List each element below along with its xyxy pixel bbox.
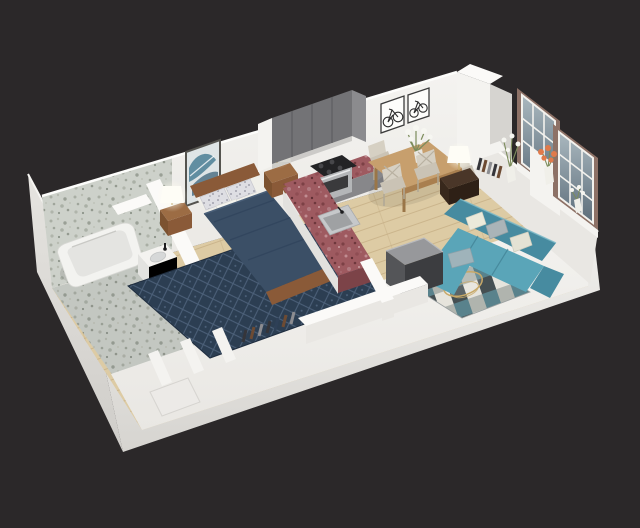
- table-lamp-living: [445, 142, 473, 170]
- floor-plan-render: 3d-isometric-floor-plan-render: [0, 0, 640, 528]
- table-lamp-left: [156, 180, 188, 212]
- kitchen-end-column: [258, 118, 272, 172]
- floor-plan-stage: 3d-isometric-floor-plan-render: [0, 0, 640, 528]
